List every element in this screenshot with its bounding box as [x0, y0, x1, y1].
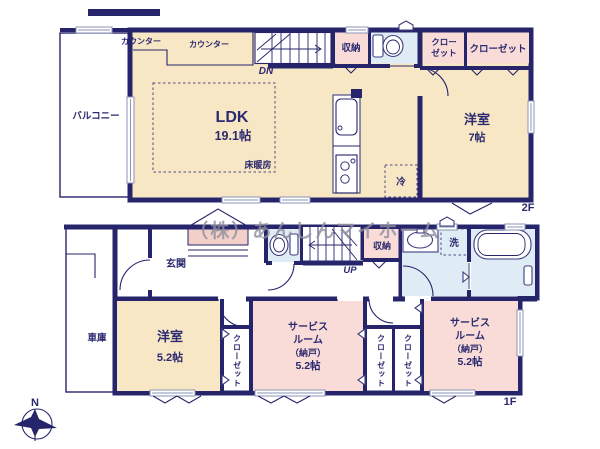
bedroom-1f-label: 洋室: [157, 329, 183, 344]
floor-heating-label: 床暖房: [244, 159, 271, 170]
bay-window-mark: [452, 203, 492, 214]
service1-line3: （納戸）: [290, 347, 326, 358]
service-room-1: [253, 301, 363, 391]
vent-mark: [399, 21, 413, 30]
compass-north-label: N: [31, 397, 39, 409]
fridge-label: 冷: [396, 176, 406, 188]
stairs-down-label: DN: [259, 66, 274, 77]
ldk-size: 19.1帖: [215, 128, 252, 143]
vent-mark: [440, 217, 454, 226]
kitchen-unit: [333, 89, 362, 193]
garage-label: 車庫: [87, 332, 107, 344]
garage: [66, 228, 115, 392]
counter-b-label: カウンター: [189, 39, 229, 49]
ldk-label: LDK: [216, 109, 249, 126]
closet-1f-c-label: クローゼット: [404, 334, 413, 388]
bedroom-1f-size: 5.2帖: [157, 350, 183, 364]
floor2-label: 2F: [522, 202, 535, 214]
service2-line3: （納戸）: [452, 343, 488, 354]
stairs-2f: [255, 33, 333, 67]
toilet-2f: [371, 33, 418, 64]
counter-a-label: カウンター: [121, 36, 161, 46]
bay-window-marks: [153, 396, 456, 403]
balcony-label: バルコニー: [72, 110, 119, 122]
entrance-label: 玄関: [166, 257, 186, 270]
bedroom-1f: [117, 301, 220, 391]
toilet-bowl-icon: [383, 36, 403, 57]
roof-edge-bar: [88, 9, 160, 16]
bathroom: [471, 229, 535, 296]
service2-line4: 5.2帖: [457, 355, 483, 368]
toilet-tank-icon: [373, 35, 383, 57]
closet-a-label1: クロー: [431, 37, 457, 47]
bedroom-2f-size: 7帖: [468, 130, 485, 144]
closet-1f-b-label: クローゼット: [377, 334, 386, 388]
laundry-label: 洗: [449, 237, 459, 249]
compass-needle: [14, 409, 57, 437]
closet-b-label: クローゼット: [469, 43, 526, 55]
bath-faucet-icon: [524, 266, 532, 285]
bedroom-2f-label: 洋室: [464, 112, 490, 127]
service1-line2: ルーム: [293, 334, 323, 346]
storage-2f-label: 収納: [341, 42, 360, 54]
floor2-plan: バルコニー DN 収納 クロー ゼット: [60, 9, 535, 214]
closet-a-label2: ゼット: [431, 48, 457, 58]
service2-line2: ルーム: [455, 330, 485, 342]
service1-line4: 5.2帖: [295, 359, 321, 372]
closet-1f-a-label: クローゼット: [233, 334, 242, 388]
watermark: （株）あんしんマイホーム: [189, 219, 440, 242]
stairs-up-label: UP: [343, 265, 357, 276]
service1-line1: サービス: [288, 320, 328, 333]
floor1-label: 1F: [504, 396, 517, 408]
service2-line1: サービス: [450, 316, 490, 329]
compass-icon: N: [14, 397, 57, 441]
floor-plan: バルコニー DN 収納 クロー ゼット: [0, 0, 600, 449]
